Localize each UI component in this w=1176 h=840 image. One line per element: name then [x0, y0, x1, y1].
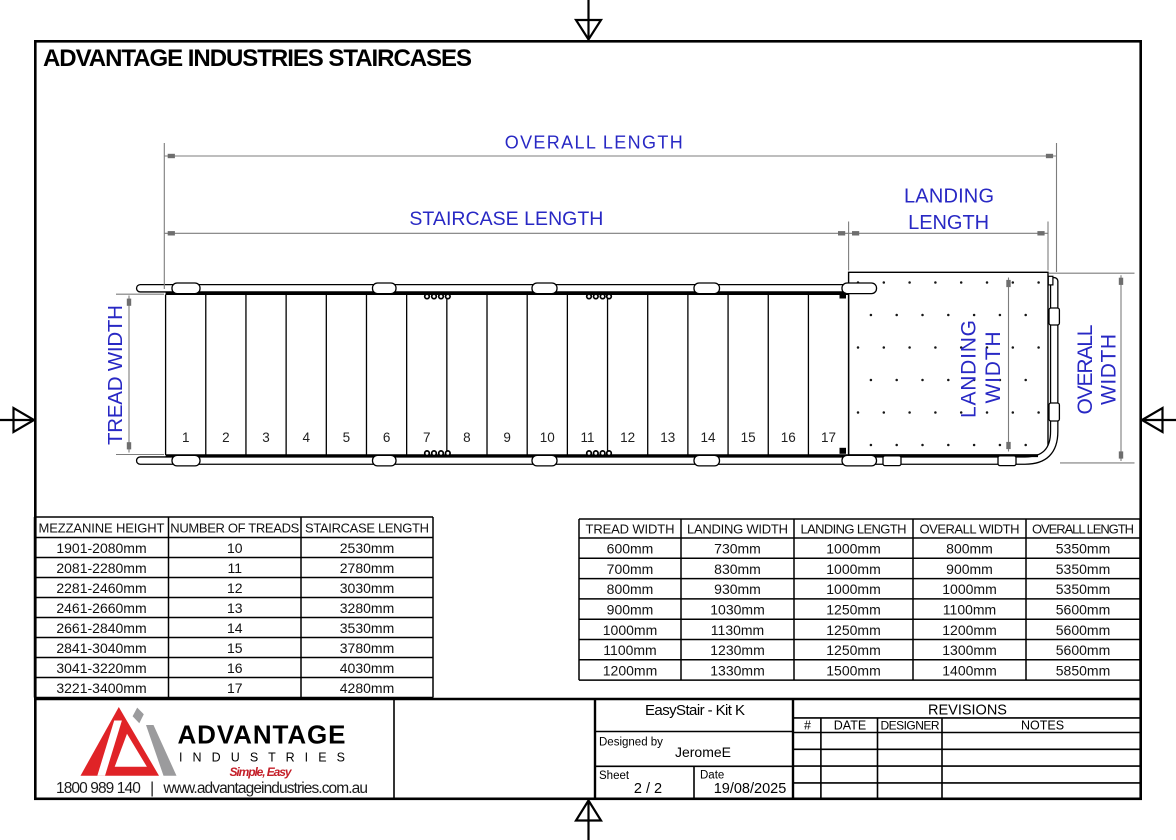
svg-text:TREAD WIDTH: TREAD WIDTH	[104, 305, 127, 445]
svg-text:3: 3	[262, 430, 270, 445]
svg-text:LENGTH: LENGTH	[908, 212, 989, 234]
svg-text:STAIRCASE LENGTH: STAIRCASE LENGTH	[305, 520, 429, 535]
svg-text:LANDING WIDTH: LANDING WIDTH	[687, 522, 788, 537]
svg-text:4030mm: 4030mm	[340, 660, 394, 676]
svg-text:5600mm: 5600mm	[1056, 602, 1110, 618]
svg-text:800mm: 800mm	[946, 541, 993, 557]
svg-text:LANDING: LANDING	[904, 186, 994, 208]
svg-text:2 / 2: 2 / 2	[634, 781, 662, 797]
svg-text:1230mm: 1230mm	[710, 642, 764, 658]
svg-text:1250mm: 1250mm	[826, 642, 880, 658]
svg-text:MEZZANINE HEIGHT: MEZZANINE HEIGHT	[39, 520, 165, 535]
svg-text:13: 13	[227, 600, 243, 616]
svg-text:1100mm: 1100mm	[943, 602, 996, 618]
svg-text:6: 6	[383, 430, 391, 445]
svg-text:730mm: 730mm	[714, 541, 761, 557]
svg-text:OVERALL LENGTH: OVERALL LENGTH	[505, 133, 683, 153]
svg-text:OVERALL WIDTH: OVERALL WIDTH	[920, 522, 1020, 537]
svg-text:19/08/2025: 19/08/2025	[714, 781, 787, 797]
svg-text:1200mm: 1200mm	[603, 662, 657, 678]
svg-text:1130mm: 1130mm	[711, 622, 764, 638]
svg-text:3280mm: 3280mm	[340, 600, 394, 616]
svg-text:ADVANTAGE: ADVANTAGE	[178, 720, 346, 750]
svg-text:2661-2840mm: 2661-2840mm	[56, 620, 146, 636]
svg-text:600mm: 600mm	[607, 541, 654, 557]
svg-text:LANDING: LANDING	[958, 320, 981, 418]
svg-text:1901-2080mm: 1901-2080mm	[56, 540, 146, 556]
svg-text:OVERALL LENGTH: OVERALL LENGTH	[1032, 522, 1134, 537]
svg-text:2081-2280mm: 2081-2280mm	[56, 560, 146, 576]
svg-text:LANDING LENGTH: LANDING LENGTH	[801, 522, 907, 537]
svg-text:830mm: 830mm	[714, 561, 761, 577]
svg-text:12: 12	[227, 580, 243, 596]
svg-text:1100mm: 1100mm	[603, 642, 656, 658]
svg-text:1000mm: 1000mm	[942, 581, 996, 597]
svg-text:OVERALL: OVERALL	[1074, 325, 1097, 415]
svg-text:14: 14	[700, 430, 716, 445]
svg-text:9: 9	[503, 430, 511, 445]
svg-text:930mm: 930mm	[714, 581, 761, 597]
svg-text:STAIRCASE LENGTH: STAIRCASE LENGTH	[409, 208, 603, 230]
svg-text:3221-3400mm: 3221-3400mm	[56, 680, 146, 696]
svg-text:3780mm: 3780mm	[340, 640, 394, 656]
svg-text:1000mm: 1000mm	[826, 541, 880, 557]
svg-text:13: 13	[660, 430, 675, 445]
svg-text:REVISIONS: REVISIONS	[928, 702, 1007, 718]
svg-text:900mm: 900mm	[946, 561, 993, 577]
svg-text:NOTES: NOTES	[1021, 719, 1064, 733]
svg-text:17: 17	[227, 680, 243, 696]
svg-text:Simple, Easy: Simple, Easy	[230, 765, 293, 779]
svg-text:11: 11	[228, 560, 243, 576]
svg-text:WIDTH: WIDTH	[1098, 334, 1121, 405]
svg-text:2841-3040mm: 2841-3040mm	[56, 640, 146, 656]
svg-text:2530mm: 2530mm	[340, 540, 394, 556]
svg-text:700mm: 700mm	[607, 561, 654, 577]
svg-text:4280mm: 4280mm	[340, 680, 394, 696]
svg-text:2461-2660mm: 2461-2660mm	[56, 600, 146, 616]
svg-text:Date: Date	[700, 770, 724, 782]
svg-text:5600mm: 5600mm	[1056, 642, 1110, 658]
svg-text:1000mm: 1000mm	[603, 622, 657, 638]
svg-text:DESIGNER: DESIGNER	[881, 719, 940, 733]
svg-text:1000mm: 1000mm	[826, 581, 880, 597]
svg-text:17: 17	[821, 430, 836, 445]
svg-text:1200mm: 1200mm	[942, 622, 996, 638]
svg-text:16: 16	[227, 660, 243, 676]
svg-text:Designed by: Designed by	[599, 737, 663, 749]
svg-text:TREAD WIDTH: TREAD WIDTH	[586, 522, 675, 537]
svg-text:1300mm: 1300mm	[942, 642, 996, 658]
svg-text:800mm: 800mm	[607, 581, 654, 597]
svg-text:1250mm: 1250mm	[826, 622, 880, 638]
svg-text:3041-3220mm: 3041-3220mm	[56, 660, 146, 676]
svg-text:#: #	[804, 719, 811, 733]
svg-text:10: 10	[540, 430, 555, 445]
svg-text:1330mm: 1330mm	[710, 662, 764, 678]
svg-text:1400mm: 1400mm	[942, 662, 996, 678]
svg-text:WIDTH: WIDTH	[982, 332, 1005, 404]
svg-text:900mm: 900mm	[607, 602, 654, 618]
svg-text:12: 12	[620, 430, 635, 445]
svg-text:15: 15	[227, 640, 243, 656]
svg-text:1000mm: 1000mm	[826, 561, 880, 577]
svg-text:NUMBER OF TREADS: NUMBER OF TREADS	[170, 520, 299, 535]
svg-text:5350mm: 5350mm	[1056, 581, 1110, 597]
svg-text:1800 989 140 | www.advanta: 1800 989 140 | www.advantageindustries.c…	[56, 780, 368, 797]
svg-text:1500mm: 1500mm	[826, 662, 880, 678]
svg-text:EasyStair - Kit K: EasyStair - Kit K	[645, 702, 745, 719]
svg-text:3530mm: 3530mm	[340, 620, 394, 636]
svg-text:1: 1	[182, 430, 190, 445]
svg-text:JeromeE: JeromeE	[675, 744, 731, 760]
svg-text:1250mm: 1250mm	[826, 602, 880, 618]
svg-text:5600mm: 5600mm	[1056, 622, 1110, 638]
svg-text:Sheet: Sheet	[599, 770, 630, 782]
svg-text:DATE: DATE	[834, 719, 866, 733]
svg-text:I N D U S T R I E S: I N D U S T R I E S	[179, 751, 345, 765]
svg-text:4: 4	[302, 430, 310, 445]
svg-text:8: 8	[463, 430, 471, 445]
svg-text:2: 2	[222, 430, 230, 445]
svg-text:10: 10	[227, 540, 243, 556]
svg-text:5: 5	[343, 430, 351, 445]
svg-text:2780mm: 2780mm	[340, 560, 394, 576]
svg-text:5850mm: 5850mm	[1056, 662, 1110, 678]
svg-text:11: 11	[580, 430, 594, 445]
svg-text:5350mm: 5350mm	[1056, 541, 1110, 557]
svg-text:3030mm: 3030mm	[340, 580, 394, 596]
svg-text:16: 16	[781, 430, 796, 445]
svg-text:5350mm: 5350mm	[1056, 561, 1110, 577]
svg-text:7: 7	[423, 430, 431, 445]
svg-text:15: 15	[741, 430, 756, 445]
svg-text:1030mm: 1030mm	[710, 602, 764, 618]
svg-text:ADVANTAGE INDUSTRIES STAIRCASE: ADVANTAGE INDUSTRIES STAIRCASES	[43, 45, 472, 72]
svg-text:14: 14	[227, 620, 243, 636]
svg-text:2281-2460mm: 2281-2460mm	[56, 580, 146, 596]
